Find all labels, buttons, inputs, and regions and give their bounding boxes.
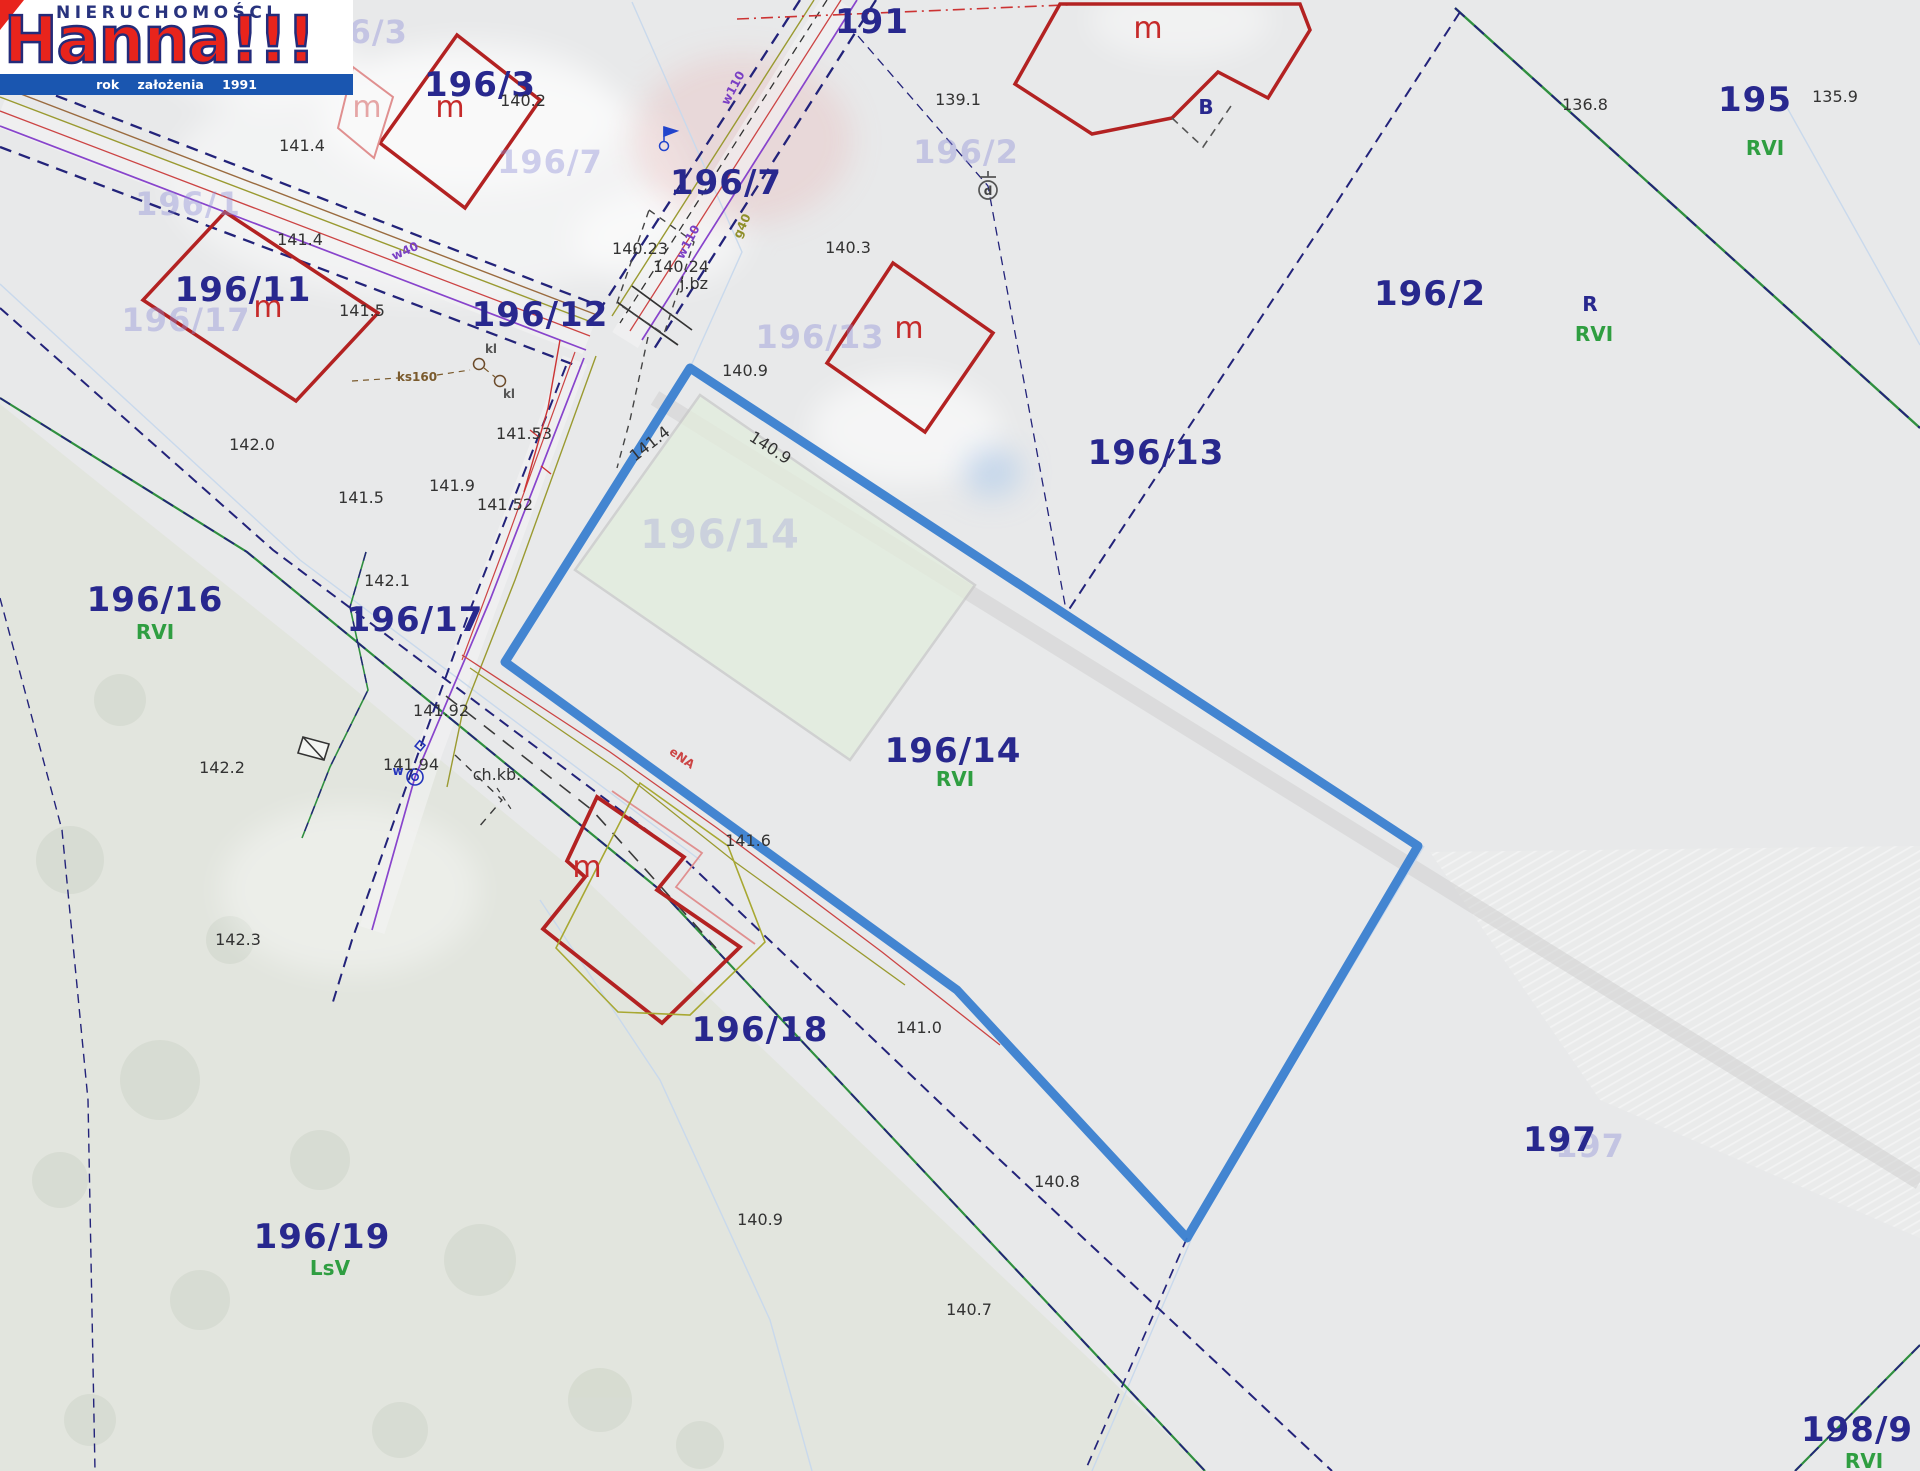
elevation-label: j.bz [680, 276, 708, 292]
elevation-label: 139.1 [935, 92, 981, 108]
parcel-number: 196/14 [885, 734, 1022, 768]
parcel-number: B [1198, 97, 1213, 117]
elevation-label: 136.8 [1562, 97, 1608, 113]
elevation-label: 140.7 [946, 1302, 992, 1318]
elevation-label: 141.4 [279, 138, 325, 154]
parcel-number-faint: 196/1 [135, 188, 241, 220]
utility-label: g40 [731, 212, 753, 240]
elevation-label: 135.9 [1812, 89, 1858, 105]
parcel-number-faint: 196/2 [913, 136, 1019, 168]
parcel-number: 196/7 [670, 166, 782, 200]
elevation-label: 140.24 [653, 259, 709, 275]
building-mark: m [435, 93, 464, 123]
utility-label: w110 [719, 69, 747, 107]
elevation-label: 141.92 [413, 703, 469, 719]
elevation-label: 140.9 [746, 429, 793, 467]
utility-label: d [984, 185, 993, 197]
soil-class-label: RVI [936, 769, 974, 789]
parcel-number: 196/18 [692, 1013, 829, 1047]
elevation-label: 141.94 [383, 757, 439, 773]
parcel-number: 195 [1718, 83, 1792, 117]
elevation-label: 141.52 [477, 497, 533, 513]
cadastral-map-canvas[interactable]: 196/3196/7196/2196/13196/1196/17196/1419… [0, 0, 1920, 1471]
elevation-label: 141.9 [429, 478, 475, 494]
elevation-label: ch.kb. [473, 767, 522, 783]
elevation-label: 140.8 [1034, 1174, 1080, 1190]
elevation-label: 141.5 [338, 490, 384, 506]
agency-logo: NIERUCHOMOŚCI Hanna!!! rok założenia 199… [0, 0, 353, 95]
parcel-number: 196/19 [254, 1220, 391, 1254]
soil-class-label: RVI [1746, 138, 1784, 158]
utility-label: w [392, 765, 403, 777]
parcel-number: 198/9 [1801, 1413, 1913, 1447]
soil-class-label: LsV [310, 1258, 350, 1278]
building-mark: m [1133, 14, 1162, 44]
map-labels-layer: 196/3196/7196/2196/13196/1196/17196/1419… [0, 0, 1920, 1471]
utility-label: ks160 [397, 371, 437, 383]
elevation-label: 142.2 [199, 760, 245, 776]
elevation-label: 142.0 [229, 437, 275, 453]
parcel-number-faint: 196/14 [640, 515, 800, 555]
building-mark: m [572, 853, 601, 883]
elevation-label: 141.4 [627, 424, 673, 465]
utility-label: kl [485, 343, 497, 355]
elevation-label: 140.9 [737, 1212, 783, 1228]
logo-tagline: rok założenia 1991 [0, 74, 353, 95]
parcel-number: 196/17 [347, 603, 484, 637]
parcel-number: 197 [1523, 1123, 1597, 1157]
elevation-label: 140.23 [612, 241, 668, 257]
elevation-label: 141.5 [339, 303, 385, 319]
building-mark: m [253, 293, 282, 323]
building-mark: m [894, 314, 923, 344]
parcel-number-faint: 196/13 [755, 321, 884, 353]
elevation-label: 141.0 [896, 1020, 942, 1036]
elevation-label: 140.3 [825, 240, 871, 256]
parcel-number: 196/13 [1088, 436, 1225, 470]
utility-label: kl [503, 388, 515, 400]
parcel-number: 196/16 [87, 583, 224, 617]
utility-label: w40 [390, 240, 420, 262]
parcel-number: 196/11 [175, 273, 312, 307]
elevation-label: 141.53 [496, 426, 552, 442]
parcel-number: R [1582, 294, 1597, 314]
soil-class-label: RVI [1845, 1451, 1883, 1471]
parcel-number: 191 [835, 5, 909, 39]
elevation-label: 141.6 [725, 833, 771, 849]
elevation-label: 140.2 [500, 93, 546, 109]
elevation-label: 140.9 [722, 363, 768, 379]
elevation-label: 142.1 [364, 573, 410, 589]
utility-label: eNA [667, 745, 696, 771]
soil-class-label: RVI [1575, 324, 1613, 344]
building-mark: m [352, 93, 381, 123]
parcel-number: 196/2 [1374, 277, 1486, 311]
parcel-number-faint: 196/7 [497, 146, 603, 178]
logo-brand-name: Hanna!!! [4, 4, 315, 78]
elevation-label: 141.4 [277, 232, 323, 248]
utility-label: w110 [674, 223, 702, 261]
parcel-number: 196/12 [472, 298, 609, 332]
soil-class-label: RVI [136, 622, 174, 642]
elevation-label: 142.3 [215, 932, 261, 948]
